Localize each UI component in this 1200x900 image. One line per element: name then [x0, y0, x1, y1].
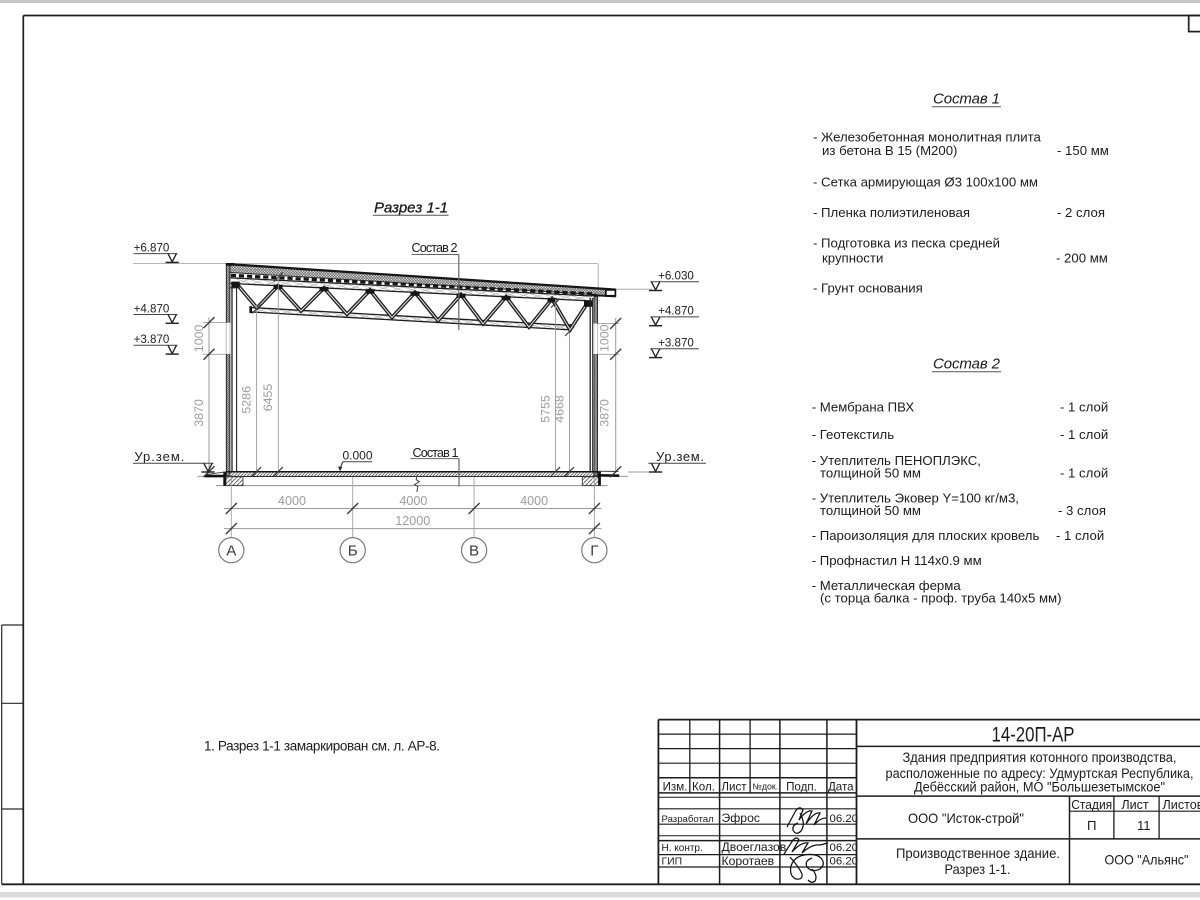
svg-text:Состав 1: Состав 1	[413, 446, 459, 460]
svg-text:4000: 4000	[278, 494, 306, 508]
svg-text:- 1 слой: - 1 слой	[1056, 528, 1104, 543]
svg-text:14-20П-АР: 14-20П-АР	[992, 723, 1075, 746]
svg-text:06.20: 06.20	[830, 856, 859, 868]
svg-text:крупности: крупности	[822, 251, 883, 266]
svg-text:Состав 2: Состав 2	[933, 355, 1001, 372]
svg-text:- 1 слой: - 1 слой	[1060, 400, 1108, 415]
svg-text:+4.870: +4.870	[658, 305, 694, 318]
svg-text:- Пароизоляция для плоских кро: - Пароизоляция для плоских кровель	[812, 528, 1040, 543]
svg-text:3870: 3870	[192, 399, 206, 427]
svg-text:- Профнастил Н 114х0.9 мм: - Профнастил Н 114х0.9 мм	[812, 553, 982, 568]
svg-text:- 1 слой: - 1 слой	[1060, 427, 1108, 442]
svg-text:Листов: Листов	[1163, 798, 1200, 812]
svg-text:Ур.зем.: Ур.зем.	[134, 449, 184, 464]
svg-text:6455: 6455	[261, 384, 275, 412]
svg-text:4000: 4000	[520, 494, 548, 508]
svg-text:Разработал: Разработал	[662, 814, 714, 825]
svg-text:4000: 4000	[399, 494, 427, 508]
svg-text:11: 11	[1137, 818, 1151, 833]
svg-text:Ур.зем.: Ур.зем.	[656, 449, 704, 464]
svg-text:- Грунт основания: - Грунт основания	[813, 281, 923, 296]
svg-text:06.20: 06.20	[830, 842, 859, 854]
svg-text:Стадия: Стадия	[1071, 798, 1112, 812]
svg-text:Разрез 1-1.: Разрез 1-1.	[945, 862, 1011, 877]
svg-text:Здания предприятия котонного п: Здания предприятия котонного производств…	[903, 750, 1177, 765]
svg-text:+6.870: +6.870	[134, 241, 170, 254]
svg-text:- 2 слоя: - 2 слоя	[1057, 205, 1105, 220]
svg-text:Кол.: Кол.	[692, 780, 715, 793]
svg-text:- 3 слоя: - 3 слоя	[1058, 503, 1106, 518]
svg-text:5755: 5755	[538, 395, 552, 423]
svg-text:Подп.: Подп.	[786, 780, 817, 793]
svg-text:- Сетка армирующая Ø3 100х100: - Сетка армирующая Ø3 100х100 мм	[813, 175, 1038, 190]
svg-text:1000: 1000	[598, 324, 612, 352]
svg-text:В: В	[469, 543, 479, 560]
svg-text:Лист: Лист	[1121, 798, 1149, 812]
svg-text:- Пленка полиэтиленовая: - Пленка полиэтиленовая	[813, 205, 970, 220]
svg-text:Состав 2: Состав 2	[412, 241, 458, 255]
svg-text:ООО "Альянс": ООО "Альянс"	[1105, 852, 1189, 867]
svg-text:+3.870: +3.870	[658, 337, 694, 350]
svg-text:толщиной 50 мм: толщиной 50 мм	[820, 466, 921, 481]
svg-text:ГИП: ГИП	[662, 857, 683, 868]
svg-text:А: А	[226, 543, 237, 560]
svg-text:3870: 3870	[598, 399, 612, 427]
svg-text:4668: 4668	[552, 395, 566, 423]
svg-text:- Мембрана ПВХ: - Мембрана ПВХ	[812, 400, 915, 415]
svg-text:Коротаев: Коротаев	[722, 854, 775, 868]
svg-text:1. Разрез 1-1 замаркирован см.: 1. Разрез 1-1 замаркирован см. л. АР-8.	[204, 739, 440, 754]
svg-text:- 1 слой: - 1 слой	[1060, 466, 1108, 481]
svg-text:- Геотекстиль: - Геотекстиль	[812, 427, 895, 442]
svg-text:06.20: 06.20	[830, 813, 859, 825]
svg-text:Производственное здание.: Производственное здание.	[896, 846, 1060, 861]
svg-text:Дата: Дата	[828, 780, 854, 793]
svg-text:12000: 12000	[395, 514, 430, 528]
svg-text:- Подготовка из песка средней: - Подготовка из песка средней	[813, 236, 1000, 251]
svg-text:толщиной 50 мм: толщиной 50 мм	[820, 503, 921, 518]
svg-text:- 200 мм: - 200 мм	[1056, 251, 1108, 266]
svg-text:Состав 1: Состав 1	[933, 90, 1000, 107]
svg-text:№док.: №док.	[752, 782, 778, 792]
svg-text:Н. контр.: Н. контр.	[662, 843, 703, 854]
svg-text:Двоеглазов: Двоеглазов	[722, 840, 787, 854]
svg-text:1000: 1000	[192, 325, 206, 353]
svg-text:ООО "Исток-строй": ООО "Исток-строй"	[908, 811, 1024, 826]
svg-text:+4.870: +4.870	[134, 302, 170, 315]
svg-text:Б: Б	[348, 543, 358, 560]
svg-text:5286: 5286	[240, 386, 254, 414]
svg-text:Г: Г	[590, 543, 598, 560]
svg-text:Лист: Лист	[721, 780, 747, 793]
svg-text:(с торца балка - проф. труба 1: (с торца балка - проф. труба 140х5 мм)	[820, 590, 1061, 605]
svg-text:из бетона В 15 (М200): из бетона В 15 (М200)	[822, 143, 957, 158]
svg-text:Дебёсский район, МО "Большезет: Дебёсский район, МО "Большезетымское"	[914, 780, 1165, 795]
svg-text:0.000: 0.000	[342, 448, 372, 462]
svg-text:П: П	[1087, 818, 1096, 833]
svg-text:+6.030: +6.030	[658, 270, 694, 283]
svg-text:Изм.: Изм.	[663, 780, 688, 793]
svg-text:- 150 мм: - 150 мм	[1057, 143, 1109, 158]
svg-text:+3.870: +3.870	[134, 333, 170, 346]
svg-text:Разрез 1-1: Разрез 1-1	[374, 199, 448, 216]
svg-text:Эфрос: Эфрос	[722, 811, 760, 825]
